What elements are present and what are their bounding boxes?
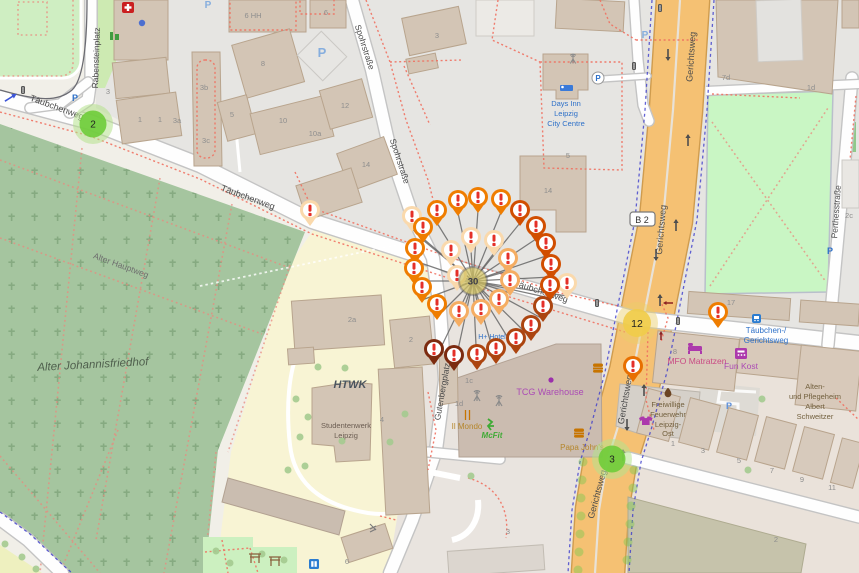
svg-text:3b: 3b bbox=[200, 83, 208, 92]
svg-text:Studentenwerk: Studentenwerk bbox=[321, 421, 371, 430]
svg-text:Feuerwehr: Feuerwehr bbox=[650, 410, 686, 419]
svg-text:City Centre: City Centre bbox=[547, 119, 585, 128]
svg-text:2c: 2c bbox=[845, 211, 853, 220]
svg-text:1: 1 bbox=[158, 115, 162, 124]
svg-text:14: 14 bbox=[362, 160, 370, 169]
svg-text:1: 1 bbox=[138, 115, 142, 124]
svg-text:Leipzig-: Leipzig- bbox=[655, 420, 682, 429]
svg-text:3: 3 bbox=[609, 455, 615, 466]
svg-text:P: P bbox=[72, 93, 78, 103]
svg-text:9: 9 bbox=[800, 475, 804, 484]
svg-text:5: 5 bbox=[737, 456, 741, 465]
svg-text:Leipzig: Leipzig bbox=[334, 431, 358, 440]
svg-text:11: 11 bbox=[828, 483, 836, 492]
svg-text:6: 6 bbox=[345, 557, 349, 566]
svg-text:1: 1 bbox=[671, 439, 675, 448]
svg-text:Rabensteinplatz: Rabensteinplatz bbox=[90, 27, 102, 88]
svg-text:Fun Kost: Fun Kost bbox=[724, 361, 759, 371]
svg-text:2a: 2a bbox=[348, 315, 357, 324]
svg-text:1d: 1d bbox=[455, 399, 463, 408]
svg-text:MFO Matratzen: MFO Matratzen bbox=[667, 356, 726, 366]
svg-text:5: 5 bbox=[566, 151, 570, 160]
svg-text:3: 3 bbox=[506, 527, 510, 536]
svg-text:7d: 7d bbox=[722, 73, 730, 82]
svg-text:8: 8 bbox=[673, 347, 677, 356]
svg-text:7: 7 bbox=[770, 466, 774, 475]
svg-text:1c: 1c bbox=[465, 376, 473, 385]
svg-text:HTWK: HTWK bbox=[334, 379, 368, 391]
svg-text:6: 6 bbox=[324, 8, 328, 17]
svg-text:3c: 3c bbox=[202, 136, 210, 145]
svg-text:TCG Warehouse: TCG Warehouse bbox=[516, 387, 583, 397]
svg-text:und Pflegeheim: und Pflegeheim bbox=[789, 392, 841, 401]
svg-text:Il Mondo: Il Mondo bbox=[452, 422, 483, 431]
svg-text:4: 4 bbox=[380, 415, 384, 424]
svg-text:12: 12 bbox=[631, 318, 643, 330]
svg-text:5: 5 bbox=[230, 110, 234, 119]
svg-text:Albert: Albert bbox=[805, 402, 826, 411]
svg-text:2: 2 bbox=[774, 535, 778, 544]
svg-text:Ost: Ost bbox=[662, 429, 675, 438]
svg-text:8: 8 bbox=[261, 59, 265, 68]
svg-text:2: 2 bbox=[90, 120, 96, 131]
svg-text:Täubchen-/: Täubchen-/ bbox=[746, 326, 787, 335]
svg-text:Leipzig: Leipzig bbox=[554, 109, 578, 118]
svg-text:Gerichtsweg: Gerichtsweg bbox=[744, 336, 788, 345]
svg-text:2: 2 bbox=[409, 335, 413, 344]
svg-text:6 HH: 6 HH bbox=[244, 11, 261, 20]
svg-text:12: 12 bbox=[341, 101, 349, 110]
svg-text:10: 10 bbox=[279, 116, 287, 125]
svg-text:1d: 1d bbox=[807, 83, 815, 92]
svg-text:Alten-: Alten- bbox=[805, 382, 825, 391]
svg-text:P: P bbox=[726, 401, 732, 411]
svg-text:P: P bbox=[827, 246, 833, 256]
svg-text:30: 30 bbox=[468, 277, 479, 288]
svg-text:3a: 3a bbox=[173, 116, 182, 125]
svg-text:P: P bbox=[318, 45, 327, 60]
svg-text:14: 14 bbox=[544, 186, 552, 195]
svg-text:P: P bbox=[642, 30, 649, 41]
svg-text:10a: 10a bbox=[309, 129, 322, 138]
svg-text:P: P bbox=[205, 0, 212, 11]
svg-text:3: 3 bbox=[106, 87, 110, 96]
svg-text:Schweitzer: Schweitzer bbox=[797, 412, 834, 421]
svg-text:3: 3 bbox=[701, 446, 705, 455]
svg-text:McFit: McFit bbox=[482, 431, 503, 440]
svg-text:Freiwillige: Freiwillige bbox=[651, 400, 684, 409]
svg-text:17: 17 bbox=[727, 298, 735, 307]
svg-text:Days Inn: Days Inn bbox=[551, 99, 581, 108]
svg-text:P: P bbox=[595, 74, 601, 83]
svg-text:3: 3 bbox=[435, 31, 439, 40]
svg-text:B 2: B 2 bbox=[635, 215, 649, 225]
